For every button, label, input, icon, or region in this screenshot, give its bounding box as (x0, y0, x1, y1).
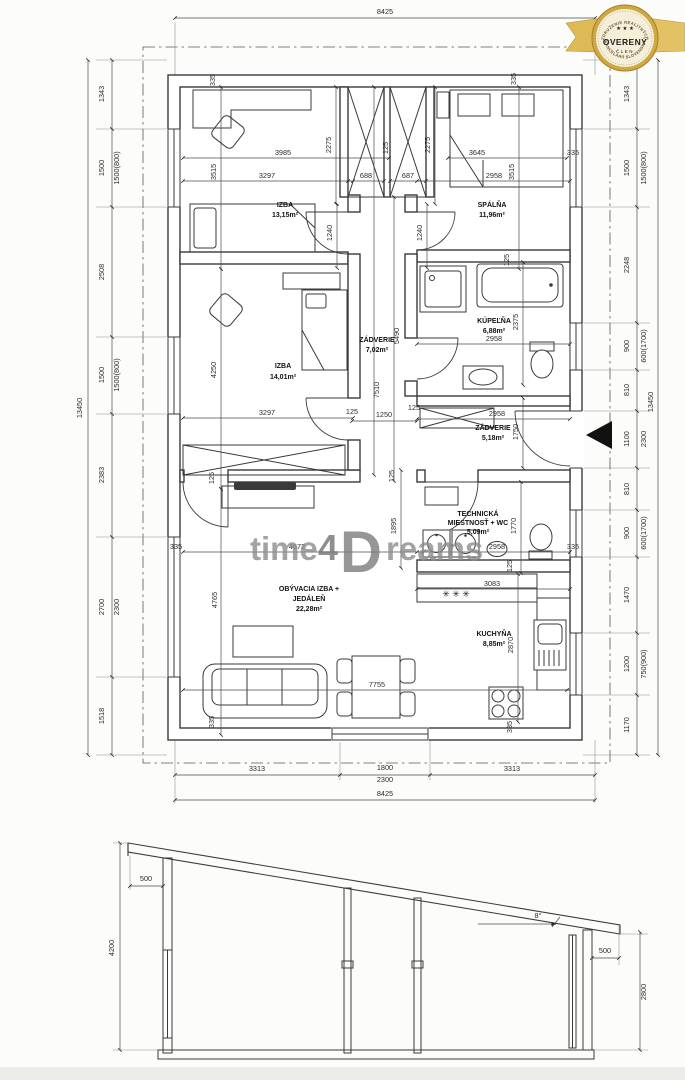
room-kupelna-name: KÚPEĽŇA (477, 316, 511, 325)
dim-bottom-8425: 8425 (377, 789, 393, 798)
room-zadverie1-name: ZÁDVERIE (359, 335, 395, 344)
dim-125-a: 125 (346, 407, 358, 416)
roof-slab (128, 843, 620, 934)
dim-right-600-1700a: 600(1700) (639, 329, 648, 362)
room-zadverie1-area: 7,02m² (366, 347, 389, 354)
dim-335-tr: 335 (509, 73, 518, 85)
section-left-window (163, 950, 172, 1038)
dim-2958d: 2958 (489, 542, 505, 551)
room-izba2-area: 14,01m² (270, 374, 297, 381)
dim-3515R: 3515 (507, 164, 516, 180)
dim-left-2300: 2300 (112, 599, 121, 615)
dim-2275L: 2275 (324, 137, 333, 153)
dim-bottom-2300: 2300 (377, 775, 393, 784)
dim-left-2383: 2383 (97, 467, 106, 483)
dim-4765: 4765 (210, 592, 219, 608)
dim-right-1100: 1100 (622, 431, 631, 447)
dim-688: 688 (360, 171, 372, 180)
floorplan-page: 8425 3313 1800 2300 3313 8425 1343 1500 … (0, 0, 685, 1080)
dim-right-750-900: 750(900) (639, 649, 648, 678)
section-right-wall (583, 930, 592, 1050)
sink-bathroom (463, 366, 503, 389)
window-right-spalna (568, 129, 584, 207)
dim-left-2508: 2508 (97, 264, 106, 280)
section-posts (342, 888, 423, 1053)
room-spalna-area: 11,96m² (479, 212, 505, 219)
dim-slope-8deg: 8° (535, 911, 542, 920)
dim-125-corr: 125 (387, 470, 396, 482)
dim-500-right: 500 (599, 946, 611, 955)
entrance-opening (568, 411, 584, 468)
plan-walls (168, 75, 582, 740)
dim-right-1200: 1200 (622, 656, 631, 672)
watermark-D: D (340, 520, 382, 585)
dim-right-900b: 900 (622, 527, 631, 539)
dim-335-left: 335 (170, 542, 182, 551)
room-izba1-area: 13,15m² (272, 212, 299, 219)
room-kupelna-area: 6,88m² (483, 328, 506, 335)
dim-125-b: 125 (408, 403, 420, 412)
dim-1240R: 1240 (415, 225, 424, 241)
room-izba2-name: IZBA (275, 363, 291, 370)
dim-right-1343: 1343 (622, 86, 631, 102)
dim-2275R: 2275 (423, 137, 432, 153)
dim-7755: 7755 (369, 680, 385, 689)
dim-125-izba2: 125 (207, 472, 216, 484)
dim-125-bath: 125 (502, 254, 511, 266)
dim-687: 687 (402, 171, 414, 180)
section-right-window (569, 935, 576, 1048)
room-spalna-name: SPÁLŇA (478, 200, 507, 209)
dim-3985: 3985 (275, 148, 291, 157)
dim-125-kit: 125 (505, 560, 514, 572)
dim-bottom-1800: 1800 (377, 763, 393, 772)
dim-2958c: 2958 (489, 409, 505, 418)
dim-3083: 3083 (484, 579, 500, 588)
dim-right-1500-800: 1500(800) (639, 151, 648, 184)
dim-left-1500-800a: 1500(800) (112, 151, 121, 184)
room-obyvacia-area: 22,28m² (296, 606, 323, 613)
room-izba1-name: IZBA (277, 202, 293, 209)
dim-335-tl: 335 (208, 74, 217, 86)
dim-1240L: 1240 (325, 225, 334, 241)
dim-2958b: 2958 (486, 334, 502, 343)
toilet-bathroom (530, 342, 554, 378)
dim-left-1518: 1518 (97, 708, 106, 724)
dim-3515L: 3515 (209, 164, 218, 180)
dim-2870: 2870 (506, 637, 515, 653)
dim-1250: 1250 (376, 410, 392, 419)
dim-right-2248: 2248 (622, 257, 631, 273)
watermark-reams: reams (386, 530, 483, 567)
dim-right-810a: 810 (622, 384, 631, 396)
toilet-tech (529, 524, 552, 559)
window-left-izba1 (166, 129, 182, 207)
room-obyvacia-l1: OBÝVACIA IZBA + (279, 584, 339, 593)
dim-3297b: 3297 (259, 408, 275, 417)
entrance-arrow (586, 421, 612, 449)
dim-1750: 1750 (511, 424, 520, 440)
room-zadverie2-area: 5,18m² (482, 435, 505, 442)
dim-7510: 7510 (372, 382, 381, 398)
dim-right-600-1700b: 600(1700) (639, 516, 648, 549)
watermark-time: time (250, 530, 318, 567)
section-floor-slab (158, 1050, 594, 1059)
window-left-living (166, 537, 182, 677)
dim-left-1500a: 1500 (97, 160, 106, 176)
watermark-4: 4 (318, 527, 338, 568)
room-obyvacia-l2: JEDÁLEŇ (293, 594, 326, 603)
window-bottom-terrace (331, 726, 429, 742)
window-left-izba2 (166, 337, 182, 414)
dim-335-kit: 335 (505, 721, 514, 733)
badge-title: OVERENÝ (603, 36, 647, 47)
room-tech-l2: MIESTNOSŤ + WC (448, 518, 508, 527)
dim-right-810b: 810 (622, 483, 631, 495)
room-kuchyna-area: 8,85m² (483, 641, 506, 648)
section-view: 4200 500 500 2800 8° (17, 843, 649, 1059)
dim-335-right: 335 (567, 542, 579, 551)
room-tech-l1: TECHNICKÁ (457, 509, 498, 518)
dim-right-1470: 1470 (622, 587, 631, 603)
dim-right-13450: 13450 (646, 392, 655, 412)
window-right-kupelna (568, 323, 584, 370)
dim-top-8425: 8425 (377, 7, 393, 16)
dim-right-2300: 2300 (639, 431, 648, 447)
room-zadverie2-name: ZÁDVERIE (475, 423, 511, 432)
dim-335-bl: 335 (207, 716, 216, 728)
dim-3297a: 3297 (259, 171, 275, 180)
dim-right-900a: 900 (622, 340, 631, 352)
dim-500-left: 500 (140, 874, 152, 883)
dim-1770: 1770 (509, 518, 518, 534)
dim-bottom-3313b: 3313 (504, 764, 520, 773)
bathtub (477, 264, 563, 307)
fridge (534, 620, 566, 670)
dim-3645: 3645 (469, 148, 485, 157)
dim-bottom-3313a: 3313 (249, 764, 265, 773)
dim-left-1343: 1343 (97, 86, 106, 102)
dim-left-1500b: 1500 (97, 367, 106, 383)
badge-stars: ★ ★ ★ (616, 25, 634, 32)
dim-left-13450: 13450 (75, 398, 84, 418)
floorplan-drawing: 8425 3313 1800 2300 3313 8425 1343 1500 … (0, 0, 685, 1080)
dim-right-1500: 1500 (622, 160, 631, 176)
dim-2375: 2375 (511, 314, 520, 330)
room-kuchyna-name: KUCHYŇA (477, 629, 512, 638)
dim-left-1500-800b: 1500(800) (112, 358, 121, 391)
page-edge-strip (0, 1067, 685, 1080)
dim-125-top: 125 (381, 142, 390, 154)
dim-4200: 4200 (107, 940, 116, 956)
badge-subtitle: ČLEN (616, 48, 634, 54)
cooktop-symbols: ✳ ✳ ✳ (442, 589, 470, 599)
dim-4250: 4250 (209, 362, 218, 378)
dim-335-spalna: 335 (567, 148, 579, 157)
dim-2800: 2800 (639, 984, 648, 1000)
verified-badge: ZDRUŽENIE REALITNÝCH KANCELÁRIÍ SLOVENSK… (566, 5, 685, 71)
dim-2958a: 2958 (486, 171, 502, 180)
shower (420, 266, 466, 312)
dim-right-1170: 1170 (622, 717, 631, 733)
dim-left-2700: 2700 (97, 599, 106, 615)
